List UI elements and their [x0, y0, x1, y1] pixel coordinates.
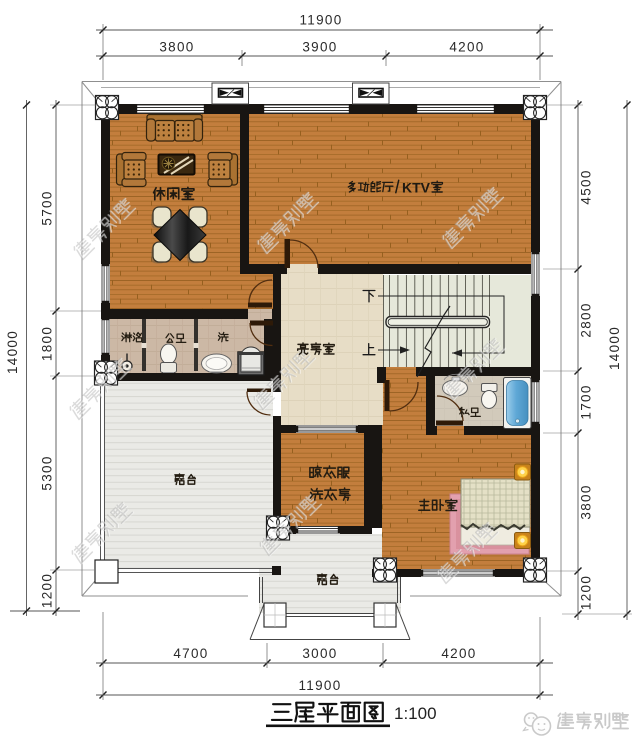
svg-text:KTV: KTV: [402, 180, 431, 196]
svg-text:2800: 2800: [579, 302, 594, 337]
svg-text:3900: 3900: [302, 40, 337, 55]
svg-text:4500: 4500: [579, 169, 594, 204]
svg-text:3800: 3800: [159, 40, 194, 55]
svg-text:5700: 5700: [40, 190, 55, 225]
svg-text:11900: 11900: [298, 678, 341, 693]
svg-text:4200: 4200: [441, 646, 476, 661]
svg-text:1:100: 1:100: [394, 704, 437, 723]
svg-text:3000: 3000: [302, 646, 337, 661]
svg-text:11900: 11900: [299, 13, 342, 28]
svg-text:1200: 1200: [40, 573, 55, 608]
svg-text:4700: 4700: [173, 646, 208, 661]
svg-text:4200: 4200: [449, 40, 484, 55]
svg-text:5300: 5300: [40, 455, 55, 490]
svg-text:1700: 1700: [579, 384, 594, 419]
svg-text:1800: 1800: [40, 326, 55, 361]
svg-text:14000: 14000: [5, 330, 20, 374]
svg-text:1200: 1200: [579, 575, 594, 610]
svg-text:3800: 3800: [579, 484, 594, 519]
svg-text:14000: 14000: [607, 326, 622, 370]
